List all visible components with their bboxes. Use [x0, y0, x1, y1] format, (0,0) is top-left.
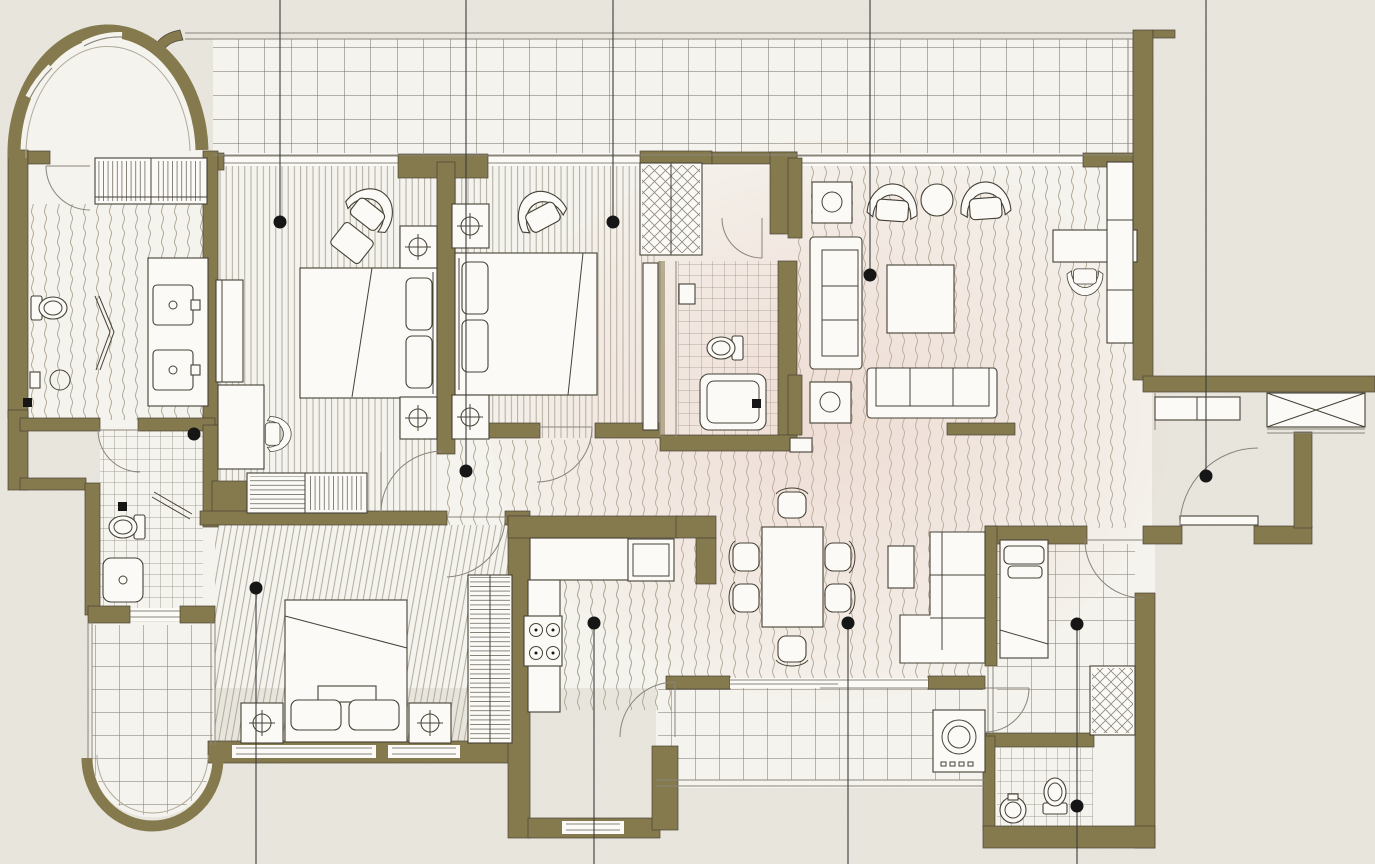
dresser [643, 263, 658, 430]
floor-plan-canvas [0, 0, 1375, 864]
shaft-x-box [1267, 393, 1365, 427]
side-table [888, 546, 914, 588]
marker-dot-bedroom-3[interactable] [250, 582, 263, 595]
bed-3-pillow [291, 700, 341, 730]
lamp-table [810, 382, 851, 423]
kitchen-counter [530, 538, 628, 580]
toilet-icon [109, 515, 145, 539]
sink [153, 350, 193, 390]
desk [218, 385, 264, 469]
marker-dot-kitchen[interactable] [588, 617, 601, 630]
wall-left-outer [8, 150, 28, 418]
wall-maid-right [1135, 593, 1155, 848]
sofa-vertical [810, 237, 862, 369]
shower-tray [103, 558, 143, 602]
dresser [216, 280, 243, 382]
stove [524, 616, 562, 666]
marker-dot-dressing[interactable] [188, 428, 201, 441]
bedroom-3-wardrobe [468, 575, 512, 743]
toilet-icon [1043, 778, 1067, 814]
marker-dot-bedroom-1[interactable] [274, 216, 287, 229]
marker-dot-living-room[interactable] [864, 269, 877, 282]
marker-dot-entry[interactable] [1200, 470, 1213, 483]
round-side-table [921, 184, 953, 216]
sideboard [790, 438, 812, 452]
floor-drain [23, 398, 32, 407]
sofa-horizontal [867, 368, 997, 418]
refrigerator [628, 539, 674, 581]
top-balcony-tiles [213, 39, 1133, 155]
sink [153, 285, 193, 325]
toilet-icon [707, 336, 743, 360]
bed-1-pillow [406, 278, 432, 330]
foyer-slatted-closet [95, 158, 207, 204]
tall-cabinet [1107, 162, 1133, 343]
entry-door-leaf [1180, 516, 1258, 525]
floor-drain [752, 399, 761, 408]
bed-1-pillow [406, 336, 432, 388]
floor-plan-drawing [0, 0, 1375, 864]
marker-dot-hallway[interactable] [460, 465, 473, 478]
wall-right-upper [1133, 30, 1153, 380]
bottom-left-balcony-tiles [92, 625, 213, 816]
sink [679, 284, 695, 304]
pillow [1004, 546, 1044, 564]
bedroom-1-closet [247, 473, 367, 513]
coffee-table [887, 265, 954, 333]
toilet-icon [31, 296, 67, 320]
lamp-table [812, 182, 852, 223]
washing-machine [933, 710, 985, 772]
maid-wardrobe [1090, 666, 1135, 735]
dining-table [762, 527, 823, 627]
marker-dot-maid-bath[interactable] [1071, 800, 1084, 813]
marker-dot-dining[interactable] [842, 617, 855, 630]
bedroom-2-wardrobe [640, 163, 702, 255]
marker-dot-bedroom-2[interactable] [607, 216, 620, 229]
floor-drain [118, 502, 127, 511]
marker-dot-maid-room[interactable] [1071, 618, 1084, 631]
tv-console [947, 423, 1015, 435]
wall-entry-north [1143, 376, 1375, 392]
bed-3-pillow [349, 700, 399, 730]
round-sink [1000, 797, 1026, 823]
